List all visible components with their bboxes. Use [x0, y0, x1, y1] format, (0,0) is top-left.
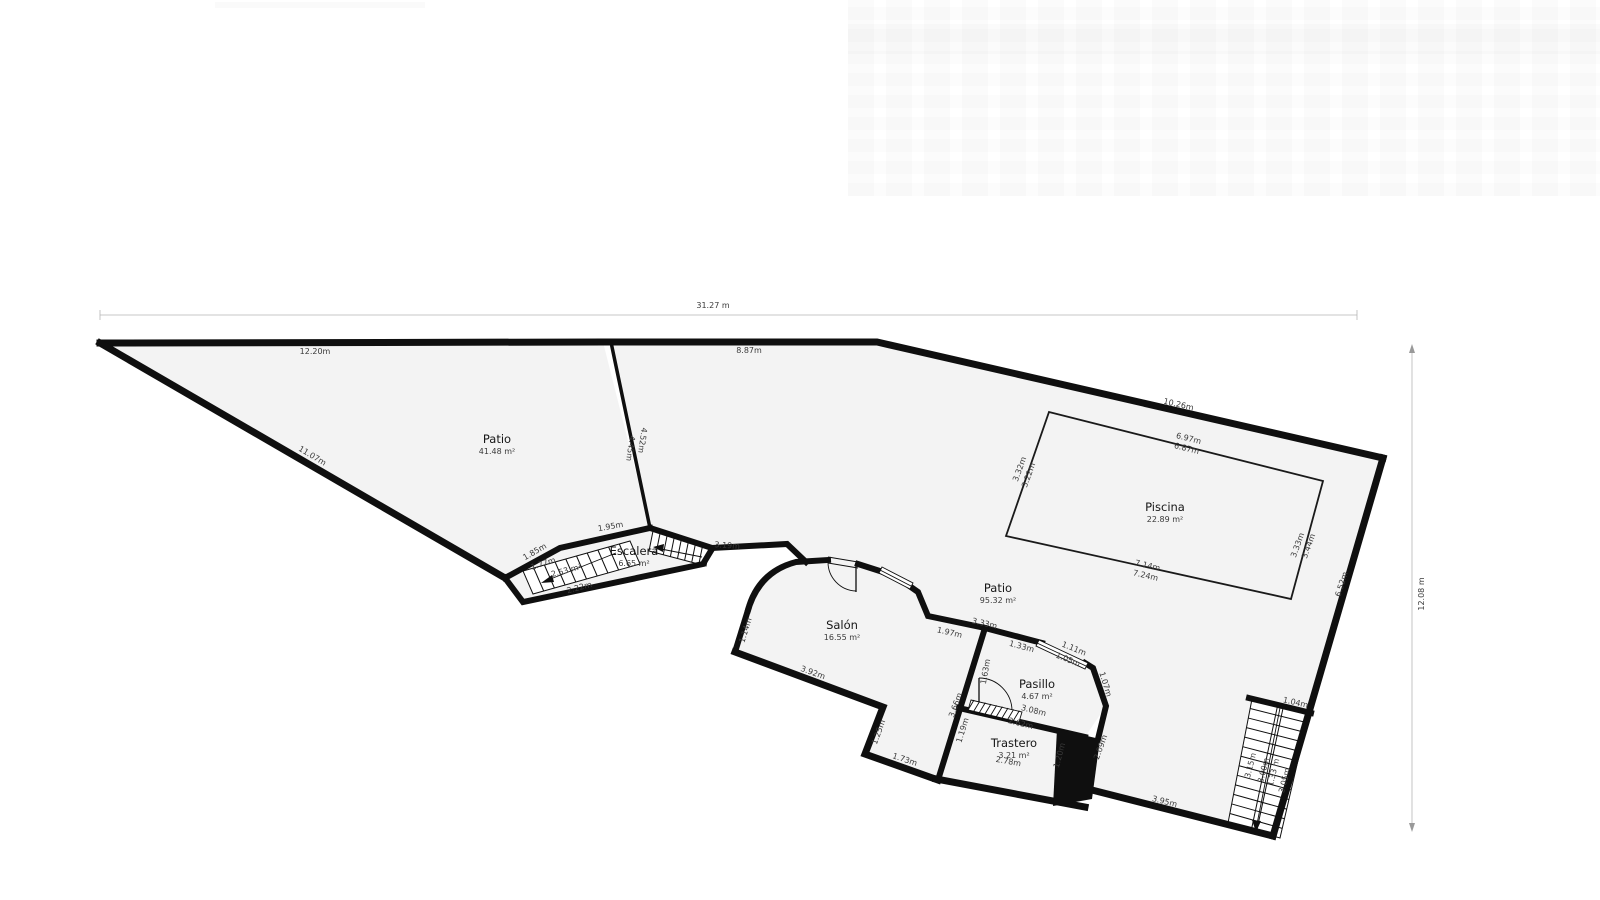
room-name-label: Trastero: [990, 736, 1037, 750]
room-name-label: Piscina: [1145, 500, 1185, 514]
room-area-label: 22.89 m²: [1147, 515, 1183, 524]
dimension-label: 8.87m: [736, 346, 762, 355]
floor-plan-canvas: 31.27 m12.08 m12.20m8.87m10.26m11.07m4.4…: [0, 0, 1600, 900]
dim-arrow-up: [1409, 344, 1415, 353]
room-area-label: 4.67 m²: [1021, 692, 1052, 701]
dimension-label: 12.20m: [300, 347, 331, 356]
dimension-label: 31.27 m: [696, 301, 729, 310]
room-name-label: Salón: [826, 618, 858, 632]
dimension-label: 12.08 m: [1417, 577, 1426, 610]
room-area-label: 6.65 m²: [618, 559, 649, 568]
room-area-label: 41.48 m²: [479, 447, 515, 456]
room-area-label: 16.55 m²: [824, 633, 860, 642]
room-name-label: Escalera: [610, 544, 659, 558]
dimension-label: 3.19m: [714, 540, 740, 551]
room-area-label: 95.32 m²: [980, 596, 1016, 605]
room-name-label: Pasillo: [1019, 677, 1055, 691]
room-name-label: Patio: [483, 432, 511, 446]
dim-arrow-down: [1409, 823, 1415, 832]
room-name-label: Patio: [984, 581, 1012, 595]
floor-plan-page: 31.27 m12.08 m12.20m8.87m10.26m11.07m4.4…: [0, 0, 1600, 900]
room-floor-patio-left: [100, 342, 650, 578]
room-area-label: 3.21 m²: [998, 751, 1029, 760]
